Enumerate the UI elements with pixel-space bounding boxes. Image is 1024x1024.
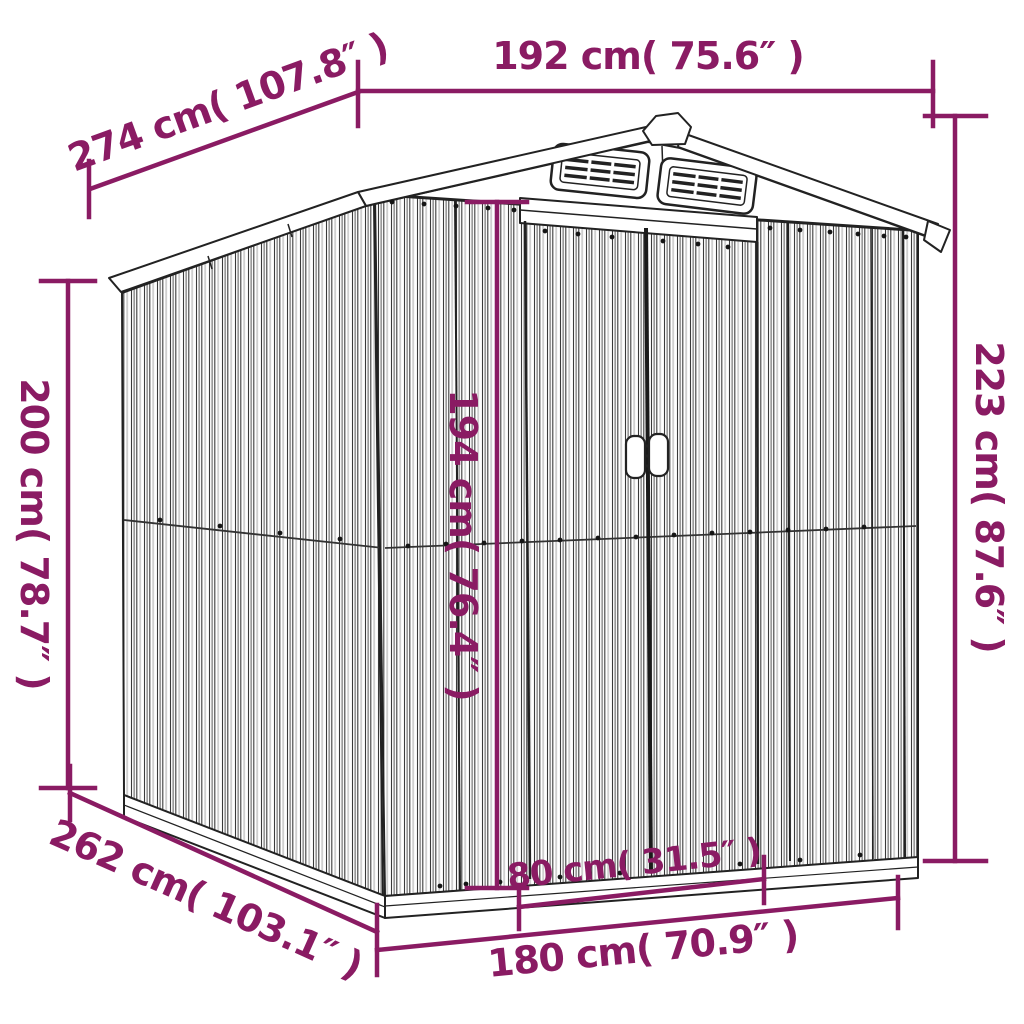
roof-right-tip — [924, 221, 950, 252]
dimension-label-wall-height-rear: 200 cm( 78.7″ ) — [15, 378, 53, 690]
door-right-edge — [757, 242, 758, 864]
shed-left-wall — [122, 202, 383, 897]
shed-illustration — [109, 113, 950, 918]
dimension-label-roof-width-top: 192 cm( 75.6″ ) — [492, 37, 804, 75]
roof-apex-cap — [643, 113, 691, 145]
shed-dimension-diagram: 192 cm( 75.6″ ) 274 cm( 107.8″ ) 200 cm(… — [0, 0, 1024, 1024]
dimension-label-total-height: 223 cm( 87.6″ ) — [970, 341, 1008, 653]
dimension-label-door-height: 194 cm( 76.4″ ) — [444, 389, 482, 701]
